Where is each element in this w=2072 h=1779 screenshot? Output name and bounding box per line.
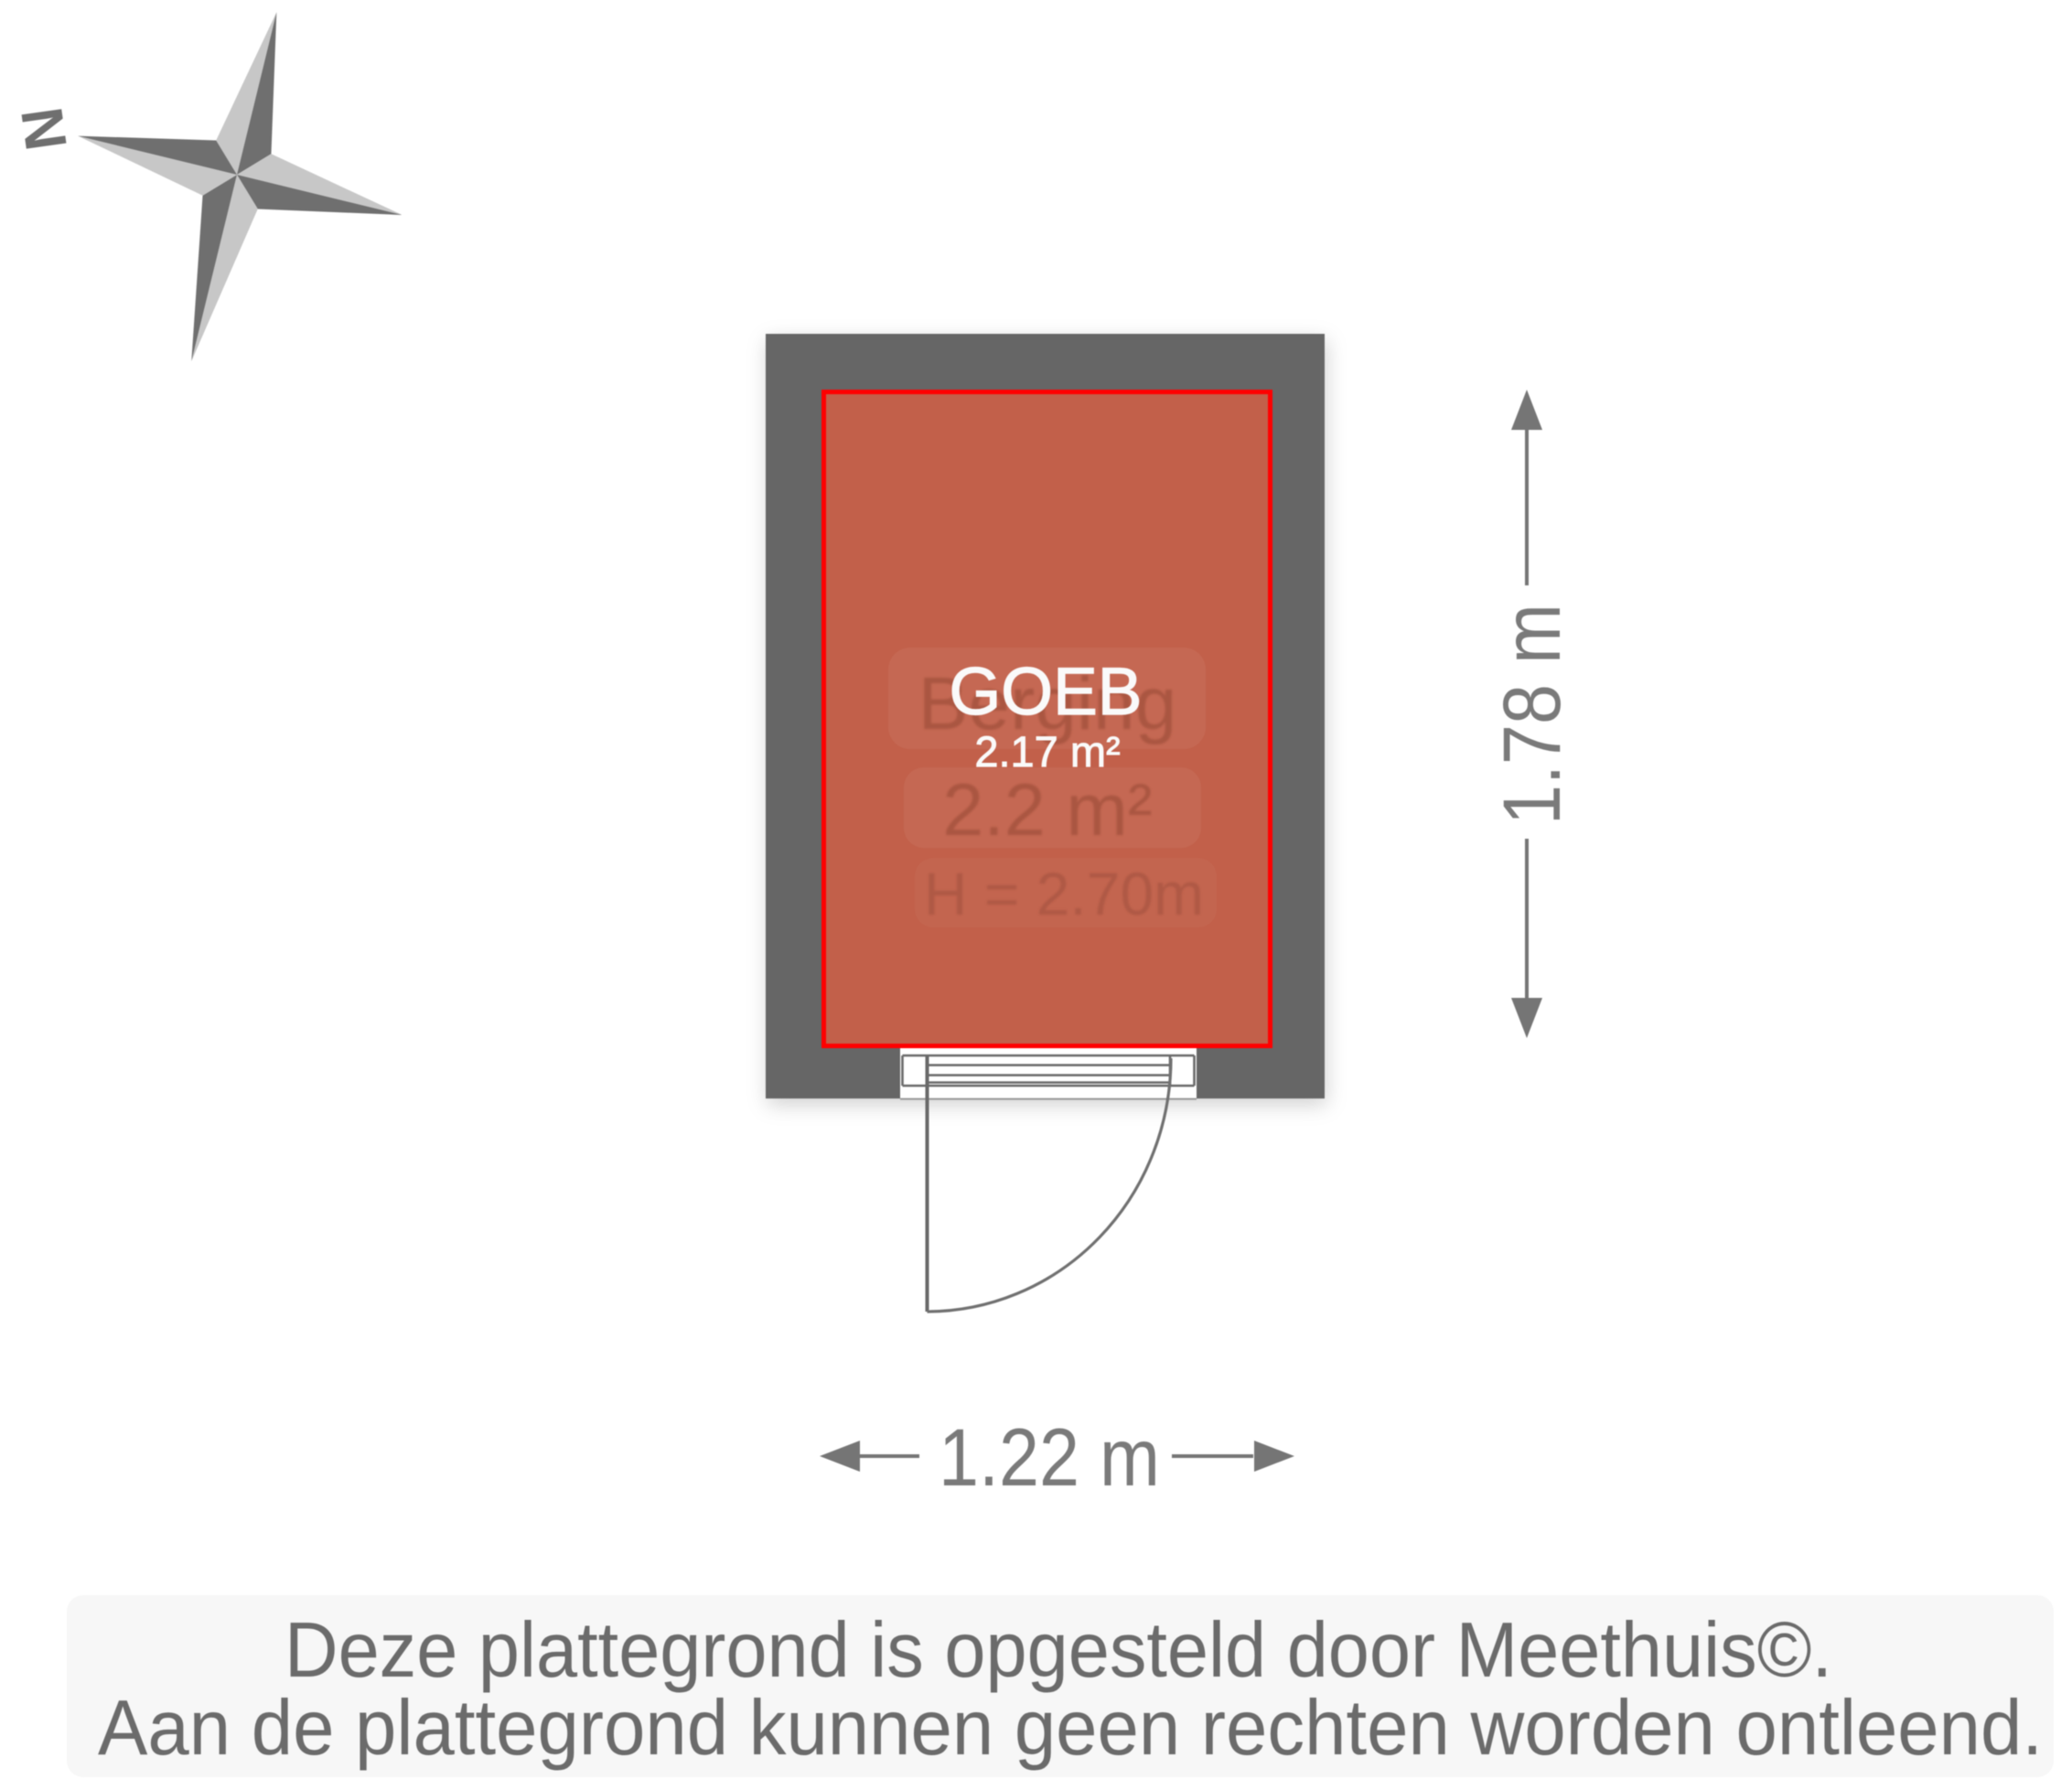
svg-text:1.22 m: 1.22 m: [939, 1411, 1160, 1503]
svg-text:2.2 m²: 2.2 m²: [942, 769, 1153, 852]
svg-text:Aan de plattegrond kunnen geen: Aan de plattegrond kunnen geen rechten w…: [98, 1685, 2043, 1772]
svg-text:Deze plattegrond is opgesteld: Deze plattegrond is opgesteld door Meeth…: [284, 1607, 1832, 1694]
svg-text:1.78 m: 1.78 m: [1486, 604, 1577, 825]
svg-text:H = 2.70m: H = 2.70m: [924, 860, 1204, 927]
svg-text:2.17 m²: 2.17 m²: [974, 727, 1120, 776]
svg-text:N: N: [8, 103, 80, 155]
svg-text:GOEB: GOEB: [950, 655, 1143, 729]
